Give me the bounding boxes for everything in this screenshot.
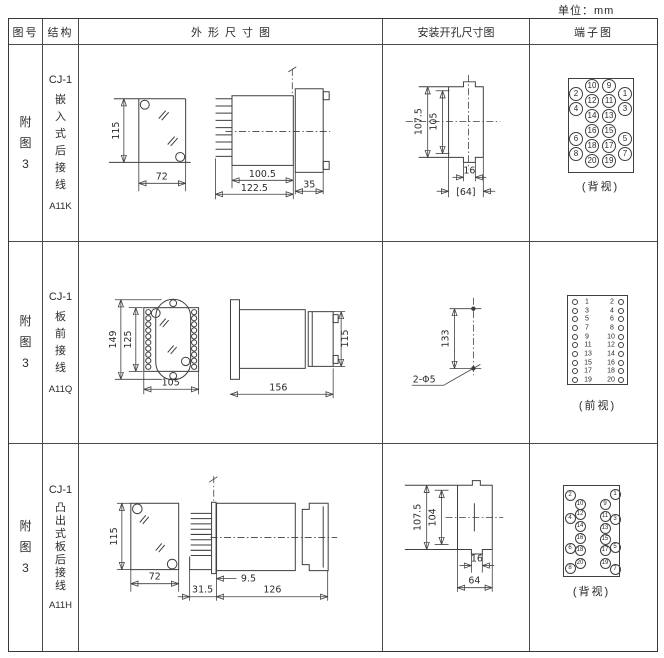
terminal-11: 11 [602,94,616,108]
row1-fig-cell: 附图3 [9,45,43,242]
dim-cutout-width: [64] [456,187,475,198]
terminal-18: 18 [575,545,586,556]
terminal-12: 12 [585,94,599,108]
terminal-10: 10 [585,79,599,93]
terminal-9: 9 [600,499,611,510]
dim-notch-width: 16 [463,165,475,176]
type-code: A11Q [49,384,73,395]
document-page: 单位：mm 图号 结构 外形尺寸图 安装开孔尺寸图 端子图 附图3 CJ-1 嵌… [0,0,664,658]
terminal-6: 6 [565,543,576,554]
terminal-2: 2 [565,490,576,501]
row1-structure-cell: CJ-1 嵌入式后接线 A11K [43,45,79,242]
front-view: 115 72 [109,99,191,192]
dim-front-width: 72 [156,171,168,182]
dim-pin-offset: 31.5 [192,585,213,596]
terminal-screw [572,316,578,322]
terminal-screw [618,351,624,357]
terminal-number-17: 17 [584,368,592,375]
outline-drawing-a11q: 149 125 105 115 [79,242,382,443]
terminal-number-18: 18 [607,368,615,375]
row1-outline-cell: 115 72 100.5 [79,45,383,242]
terminal-strip [146,310,197,370]
terminal-8: 8 [565,563,576,574]
side-view: 9.5 31.5 126 [178,476,337,601]
hatch-mark [140,515,165,552]
terminal-number-11: 11 [584,342,591,349]
terminal-number-14: 14 [607,351,615,358]
dim-rear-height: 115 [340,330,351,348]
header-terminal: 端子图 [530,19,657,45]
terminal-9: 9 [602,79,616,93]
terminal-15: 15 [602,124,616,138]
outline-drawing-a11k: 115 72 100.5 [79,45,382,241]
terminal-screw [618,360,624,366]
terminal-5: 5 [610,542,621,553]
dim-stud-offset: 9.5 [241,574,256,585]
row3-mounting-cell: 107.5 104 16 64 [383,444,530,651]
terminal-number-20: 20 [607,377,615,384]
terminal-2: 2 [569,87,583,101]
dim-inner-height: 105 [429,113,440,131]
model-label: CJ-1 [49,291,72,303]
terminal-number-4: 4 [610,308,614,315]
terminal-5: 5 [618,132,632,146]
terminal-number-10: 10 [607,334,615,341]
terminal-screw [572,325,578,331]
terminal-1: 1 [618,87,632,101]
terminal-14: 14 [575,521,586,532]
header-structure: 结构 [43,19,79,45]
dim-total-length: 156 [269,382,287,393]
dim-front-height: 115 [109,527,120,545]
terminal-8: 8 [569,147,583,161]
terminal-19: 19 [602,154,616,168]
terminal-6: 6 [569,132,583,146]
dim-front-height: 115 [111,122,122,140]
structure-label: 凸出式板后接线 [54,502,66,593]
row3-fig-cell: 附图3 [9,444,43,651]
mounting-drawing-a11q: 133 2-Φ5 [383,242,529,443]
terminal-number-12: 12 [607,342,615,349]
terminal-number-5: 5 [585,316,589,323]
terminal-view-label: (前视) [545,397,650,413]
terminal-box: 1357911131517192468101214161820 [567,295,628,385]
terminal-screw [572,377,578,383]
dim-hole-spacing: 133 [441,330,452,348]
terminal-4: 4 [565,513,576,524]
terminal-number-9: 9 [585,334,589,341]
row3-outline-cell: 115 72 [79,444,383,651]
model-label: CJ-1 [49,484,72,496]
terminal-20: 20 [575,558,586,569]
model-label: CJ-1 [49,74,72,86]
terminal-number-2: 2 [610,299,614,306]
front-view: 149 125 105 [108,299,199,394]
fig-number: 附图3 [19,112,33,175]
terminal-10: 10 [575,499,586,510]
terminal-17: 17 [600,545,611,556]
row3-terminal-cell: (背视) 2110912114314131615651817201987 [530,444,657,651]
terminal-screw [572,334,578,340]
terminal-20: 20 [585,154,599,168]
header-mounting: 安装开孔尺寸图 [383,19,530,45]
terminal-screw [618,377,624,383]
terminal-screw [618,299,624,305]
outline-drawing-a11h: 115 72 [79,444,382,651]
dim-body-height: 125 [123,330,134,348]
structure-label: 嵌入式后接线 [54,92,66,194]
row2-mounting-cell: 133 2-Φ5 [383,242,530,444]
terminal-box: 1092121114141336161558181772019 [568,78,634,173]
terminal-number-15: 15 [584,360,592,367]
terminal-screw [618,368,624,374]
terminal-screw [572,351,578,357]
terminal-number-16: 16 [607,360,615,367]
terminal-number-6: 6 [610,316,614,323]
terminal-17: 17 [602,139,616,153]
terminal-16: 16 [585,124,599,138]
terminal-12: 12 [575,509,586,520]
cutout-outline [405,481,503,592]
dim-outer-height: 107.5 [413,504,424,531]
row2-fig-cell: 附图3 [9,242,43,444]
terminal-screw [572,299,578,305]
terminal-screw [618,325,624,331]
terminal-13: 13 [600,523,611,534]
front-view: 115 72 [109,503,179,591]
fig-number: 附图3 [19,516,33,579]
terminal-number-19: 19 [584,377,592,384]
terminal-14: 14 [585,109,599,123]
spec-table: 图号 结构 外形尺寸图 安装开孔尺寸图 端子图 附图3 CJ-1 嵌入式后接线 … [8,18,658,652]
dim-body-length: 126 [263,585,281,596]
terminal-7: 7 [618,147,632,161]
dim-flange-depth: 35 [303,179,315,190]
terminal-13: 13 [602,109,616,123]
dim-hole-spec: 2-Φ5 [413,374,436,385]
dim-notch-width: 16 [471,554,483,565]
terminal-4: 4 [569,102,583,116]
row1-terminal-cell: (背视) 1092121114141336161558181772019 [530,45,657,242]
terminal-screw [618,342,624,348]
dim-front-width: 72 [149,572,161,583]
terminal-19: 19 [600,558,611,569]
terminal-screw [618,316,624,322]
side-view: 100.5 122.5 35 [216,67,331,199]
terminal-number-7: 7 [585,325,589,332]
terminal-number-1: 1 [585,299,589,306]
row3-structure-cell: CJ-1 凸出式板后接线 A11H [43,444,79,651]
terminal-number-8: 8 [610,325,614,332]
unit-label: 单位：mm [558,2,614,18]
dim-body-length: 100.5 [249,169,276,180]
terminal-3: 3 [618,102,632,116]
terminal-18: 18 [585,139,599,153]
type-code: A11H [49,600,72,611]
hatch-mark [160,319,177,354]
fig-number: 附图3 [19,311,33,374]
type-code: A11K [49,201,72,212]
terminal-16: 16 [575,533,586,544]
dim-front-width: 105 [162,377,180,388]
terminal-view-label: (背视) [539,583,644,599]
terminal-box: 2110912114314131615651817201987 [563,485,620,577]
row2-terminal-cell: (前视) 1357911131517192468101214161820 [530,242,657,444]
terminal-screw [618,308,624,314]
header-fig-no: 图号 [9,19,43,45]
row1-mounting-cell: 107.5 105 16 [64] [383,45,530,242]
terminal-screw [618,334,624,340]
dim-total-length: 122.5 [241,183,268,194]
terminal-screw [572,342,578,348]
terminal-screw [572,368,578,374]
terminal-number-13: 13 [584,351,592,358]
terminal-7: 7 [610,564,621,575]
terminal-11: 11 [600,511,611,522]
dim-plate-height: 149 [108,330,119,348]
terminal-3: 3 [610,514,621,525]
terminal-screw [572,308,578,314]
terminal-1: 1 [610,489,621,500]
terminal-15: 15 [600,534,611,545]
dim-inner-height: 104 [428,508,439,526]
hatch-mark [159,111,178,146]
terminal-screw [572,360,578,366]
header-outline: 外形尺寸图 [79,19,383,45]
side-view: 115 156 [231,300,352,399]
dim-outer-height: 107.5 [414,108,425,135]
dim-cutout-width: 64 [468,576,480,587]
mounting-drawing-a11h: 107.5 104 16 64 [383,444,529,651]
mounting-drawing-a11k: 107.5 105 16 [64] [383,45,529,241]
row2-outline-cell: 149 125 105 115 [79,242,383,444]
terminal-view-label: (背视) [548,178,653,194]
terminal-number-3: 3 [585,308,589,315]
row2-structure-cell: CJ-1 板前接线 A11Q [43,242,79,444]
structure-label: 板前接线 [54,309,66,377]
